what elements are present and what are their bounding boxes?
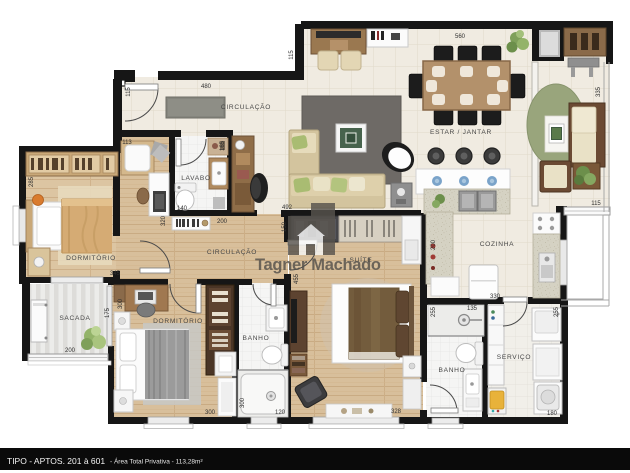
svg-text:Tagner Machado: Tagner Machado [255, 256, 381, 274]
svg-text:- Área Total Privativa - 113: - Área Total Privativa - 113,28m² [110, 457, 203, 466]
svg-text:335: 335 [596, 86, 602, 97]
svg-text:BANHO: BANHO [243, 335, 270, 342]
svg-text:115: 115 [289, 50, 295, 60]
svg-text:200: 200 [217, 219, 228, 225]
svg-text:LAVABO: LAVABO [181, 175, 211, 182]
svg-text:328: 328 [391, 409, 402, 415]
svg-text:TIPO - APTOS. 201 à 601: TIPO - APTOS. 201 à 601 [7, 456, 105, 466]
svg-text:492: 492 [282, 205, 293, 211]
svg-text:150: 150 [282, 221, 288, 232]
svg-text:255: 255 [554, 306, 560, 317]
svg-text:345: 345 [110, 271, 121, 277]
svg-text:SERVIÇO: SERVIÇO [497, 354, 531, 361]
svg-text:DORMITÓRIO: DORMITÓRIO [153, 316, 203, 325]
svg-text:480: 480 [201, 84, 212, 90]
svg-text:CIRCULAÇÃO: CIRCULAÇÃO [207, 247, 257, 256]
svg-text:DORMITÓRIO: DORMITÓRIO [66, 253, 116, 262]
svg-text:300: 300 [118, 298, 124, 309]
svg-text:300: 300 [240, 397, 246, 408]
svg-text:165: 165 [220, 140, 226, 151]
svg-text:COZINHA: COZINHA [480, 241, 515, 248]
svg-text:255: 255 [431, 306, 437, 317]
svg-text:ESTAR / JANTAR: ESTAR / JANTAR [430, 129, 492, 136]
svg-text:180: 180 [547, 411, 558, 417]
svg-text:300: 300 [205, 410, 216, 416]
svg-text:115: 115 [126, 87, 132, 97]
svg-text:BANHO: BANHO [439, 367, 466, 374]
svg-text:455: 455 [294, 273, 300, 284]
svg-text:113: 113 [122, 140, 132, 146]
svg-text:560: 560 [455, 34, 466, 40]
svg-text:140: 140 [177, 206, 188, 212]
svg-text:135: 135 [467, 306, 478, 312]
svg-text:175: 175 [105, 307, 111, 318]
svg-text:285: 285 [29, 176, 35, 187]
svg-text:120: 120 [275, 410, 286, 416]
svg-text:SACADA: SACADA [59, 315, 90, 322]
svg-text:330: 330 [490, 294, 501, 300]
svg-text:115: 115 [591, 201, 601, 207]
svg-text:200: 200 [431, 239, 437, 250]
svg-text:200: 200 [65, 348, 76, 354]
svg-text:320: 320 [161, 215, 167, 226]
svg-text:CIRCULAÇÃO: CIRCULAÇÃO [221, 102, 271, 111]
